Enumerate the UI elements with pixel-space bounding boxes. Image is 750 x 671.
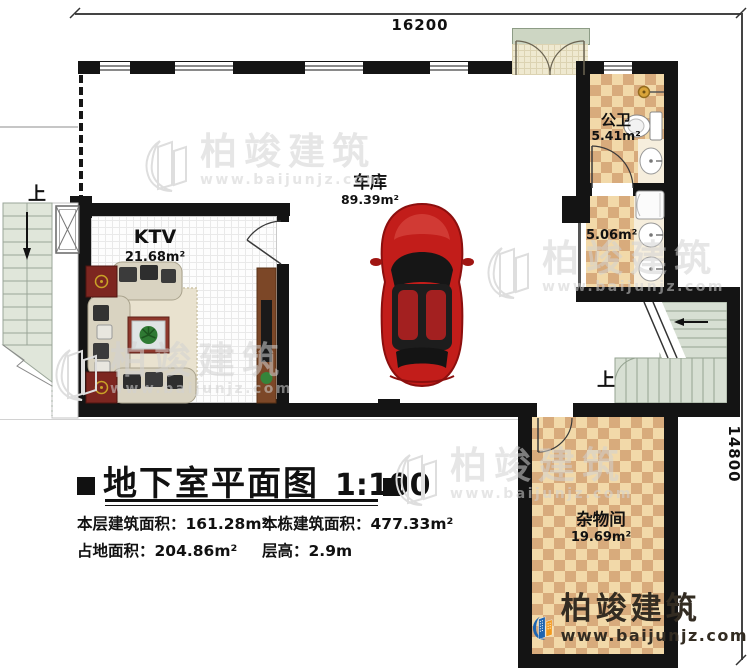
window-top-2 xyxy=(175,61,233,74)
storage-area: 19.69m² xyxy=(562,531,640,544)
ktv-wall-right-upper xyxy=(277,203,289,222)
page-title: 地下室平面图 xyxy=(103,464,319,504)
brand-url: www.baijunjz.com xyxy=(561,626,748,645)
brand-name: 柏竣建筑 xyxy=(561,592,748,626)
title-row: 地下室平面图1:100 xyxy=(103,456,431,505)
left-stair-up-label: 上 xyxy=(28,180,46,206)
wall-bottom xyxy=(78,403,740,417)
dim-line-top xyxy=(75,13,741,15)
entry-porch-step xyxy=(512,28,590,45)
ktv-wall-top xyxy=(78,203,290,216)
stair-wall-right xyxy=(727,287,740,417)
brand-logo: 柏竣建筑 www.baijunjz.com xyxy=(530,592,748,664)
window-top-3 xyxy=(305,61,363,74)
bath-wall-left xyxy=(576,61,590,196)
bath-label: 公卫 xyxy=(593,113,639,129)
dim-top-value: 16200 xyxy=(380,16,460,34)
stat-building-area: 本栋建筑面积：477.33m² xyxy=(262,512,453,534)
ground-line-left xyxy=(0,126,78,128)
wall-bottom-pier-2 xyxy=(378,399,400,417)
garage-area: 89.39m² xyxy=(335,194,405,207)
title-bullet-right xyxy=(383,478,401,496)
dim-right-value: 14800 xyxy=(725,424,743,484)
bath-sink-alcove xyxy=(638,139,664,183)
window-top-4 xyxy=(430,61,468,74)
bath-wall-right xyxy=(664,61,678,302)
brand-logo-icon xyxy=(530,592,555,662)
car xyxy=(352,200,492,392)
window-top-1 xyxy=(100,61,130,74)
title-underline-thin xyxy=(105,505,378,506)
bath-area: 5.41m² xyxy=(591,130,641,143)
storage-label: 杂物间 xyxy=(562,511,640,528)
title-bullet-left xyxy=(77,477,95,495)
wash-sink-alcove xyxy=(634,190,664,288)
stat-footprint: 占地面积：204.86m² xyxy=(77,539,237,561)
wash-area: 5.06m² xyxy=(586,229,636,242)
ktv-label: KTV xyxy=(120,228,190,248)
basement-floor-plan: 16200 14800 xyxy=(0,0,750,671)
wall-bottom-pier-1 xyxy=(265,399,287,417)
garage-label: 车库 xyxy=(335,175,405,193)
stat-floor-height: 层高：2.9m xyxy=(262,539,352,561)
stat-floor-area: 本层建筑面积：161.28m² xyxy=(77,512,268,534)
watermark-brand: 柏竣建筑 xyxy=(200,133,383,170)
ktv-wall-right-lower xyxy=(277,264,289,417)
bath-wall-bottom xyxy=(576,287,740,302)
storage-door-opening xyxy=(537,403,573,417)
dim-line-right xyxy=(741,13,743,660)
right-stair-up-label: 上 xyxy=(597,366,615,392)
ground-line-bottom xyxy=(0,419,518,420)
bath-pier xyxy=(562,196,590,223)
title-underline-thick xyxy=(105,499,378,502)
bath-door-opening xyxy=(592,183,633,196)
window-top-5 xyxy=(604,61,632,74)
wash-left-edge xyxy=(578,223,581,288)
ktv-area: 21.68m² xyxy=(115,251,195,264)
watermark-icon xyxy=(140,133,192,195)
dashed-overhang-line xyxy=(79,75,83,203)
ktv-wall-left xyxy=(78,203,91,417)
